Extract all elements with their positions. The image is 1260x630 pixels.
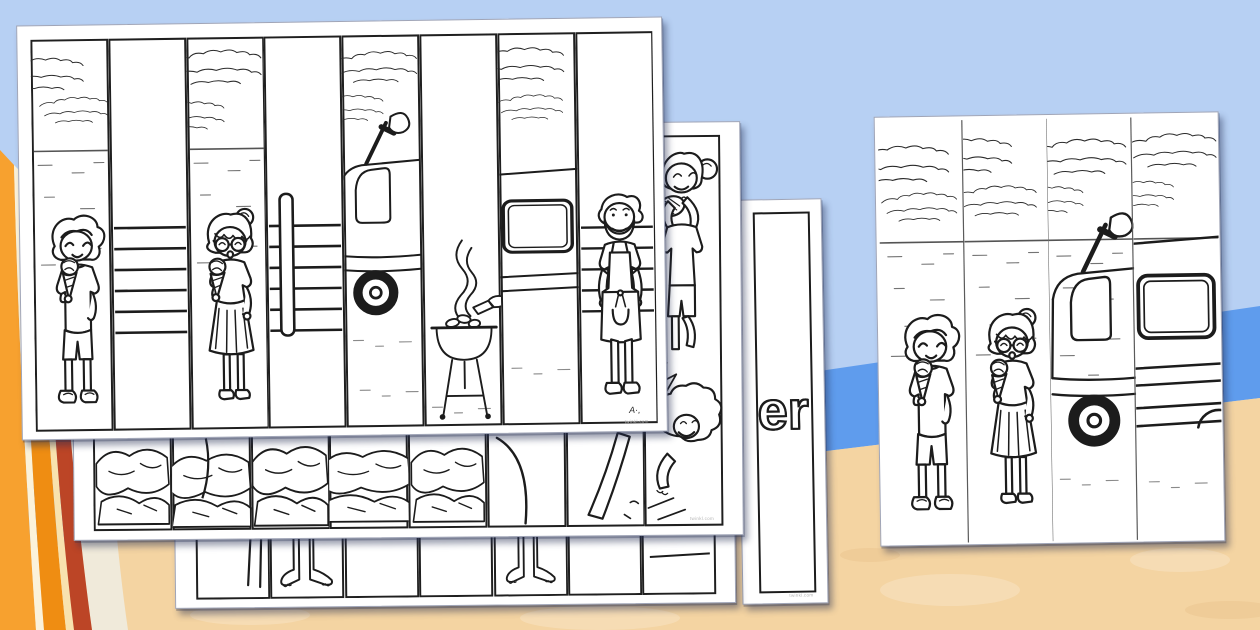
watermark: twinkl.com	[625, 419, 649, 424]
strip-boy-eating-ice-cream	[30, 38, 113, 432]
word-card-text: er	[741, 379, 826, 442]
strip-girl-eating-ice-cream	[186, 36, 269, 430]
worksheet-preview-scene: er twinkl.com	[0, 0, 1260, 630]
tiny-signature-doodle: A·,	[629, 405, 641, 415]
strip-ice-cream-van-side	[1132, 115, 1223, 540]
strip-fence-rails	[108, 37, 191, 431]
strip-barbecue-grill	[419, 33, 502, 427]
strip-camper-van-front	[341, 34, 424, 428]
strip-ice-cream-van-front	[1047, 117, 1138, 542]
front-worksheet-page: A·, twinkl.com	[16, 17, 668, 441]
strip-fence-rails-and-post	[264, 35, 347, 429]
solution-card-page	[874, 111, 1226, 546]
strip-camper-van-side-window	[497, 32, 580, 426]
strip-boy-eating-ice-cream	[878, 119, 969, 544]
strip-girl-eating-ice-cream	[962, 118, 1053, 543]
strip-man-in-apron	[575, 31, 658, 425]
